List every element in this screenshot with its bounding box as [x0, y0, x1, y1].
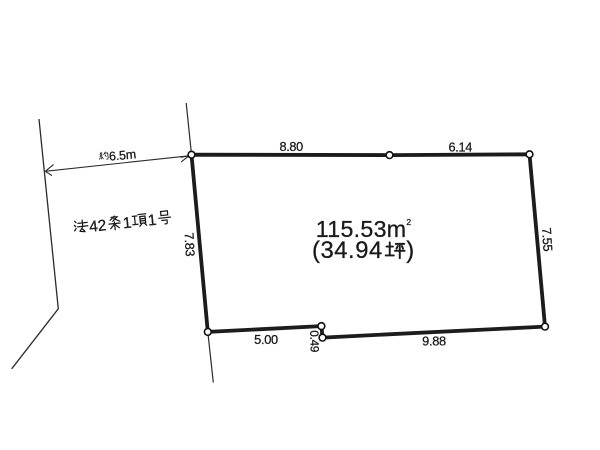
- svg-text:8.80: 8.80: [279, 140, 303, 154]
- svg-text:6.5m: 6.5m: [108, 147, 136, 163]
- svg-text:5.00: 5.00: [254, 332, 278, 347]
- svg-text:0.49: 0.49: [307, 330, 321, 352]
- svg-text:6.14: 6.14: [449, 140, 473, 154]
- svg-text:1: 1: [147, 212, 157, 230]
- svg-text:): ): [406, 237, 414, 264]
- svg-text:7.83: 7.83: [182, 232, 198, 257]
- svg-text:1: 1: [122, 214, 132, 232]
- svg-text:(34.94: (34.94: [312, 237, 383, 264]
- svg-text:7.55: 7.55: [539, 227, 556, 252]
- svg-text:9.88: 9.88: [422, 334, 446, 349]
- svg-text:42: 42: [88, 217, 107, 236]
